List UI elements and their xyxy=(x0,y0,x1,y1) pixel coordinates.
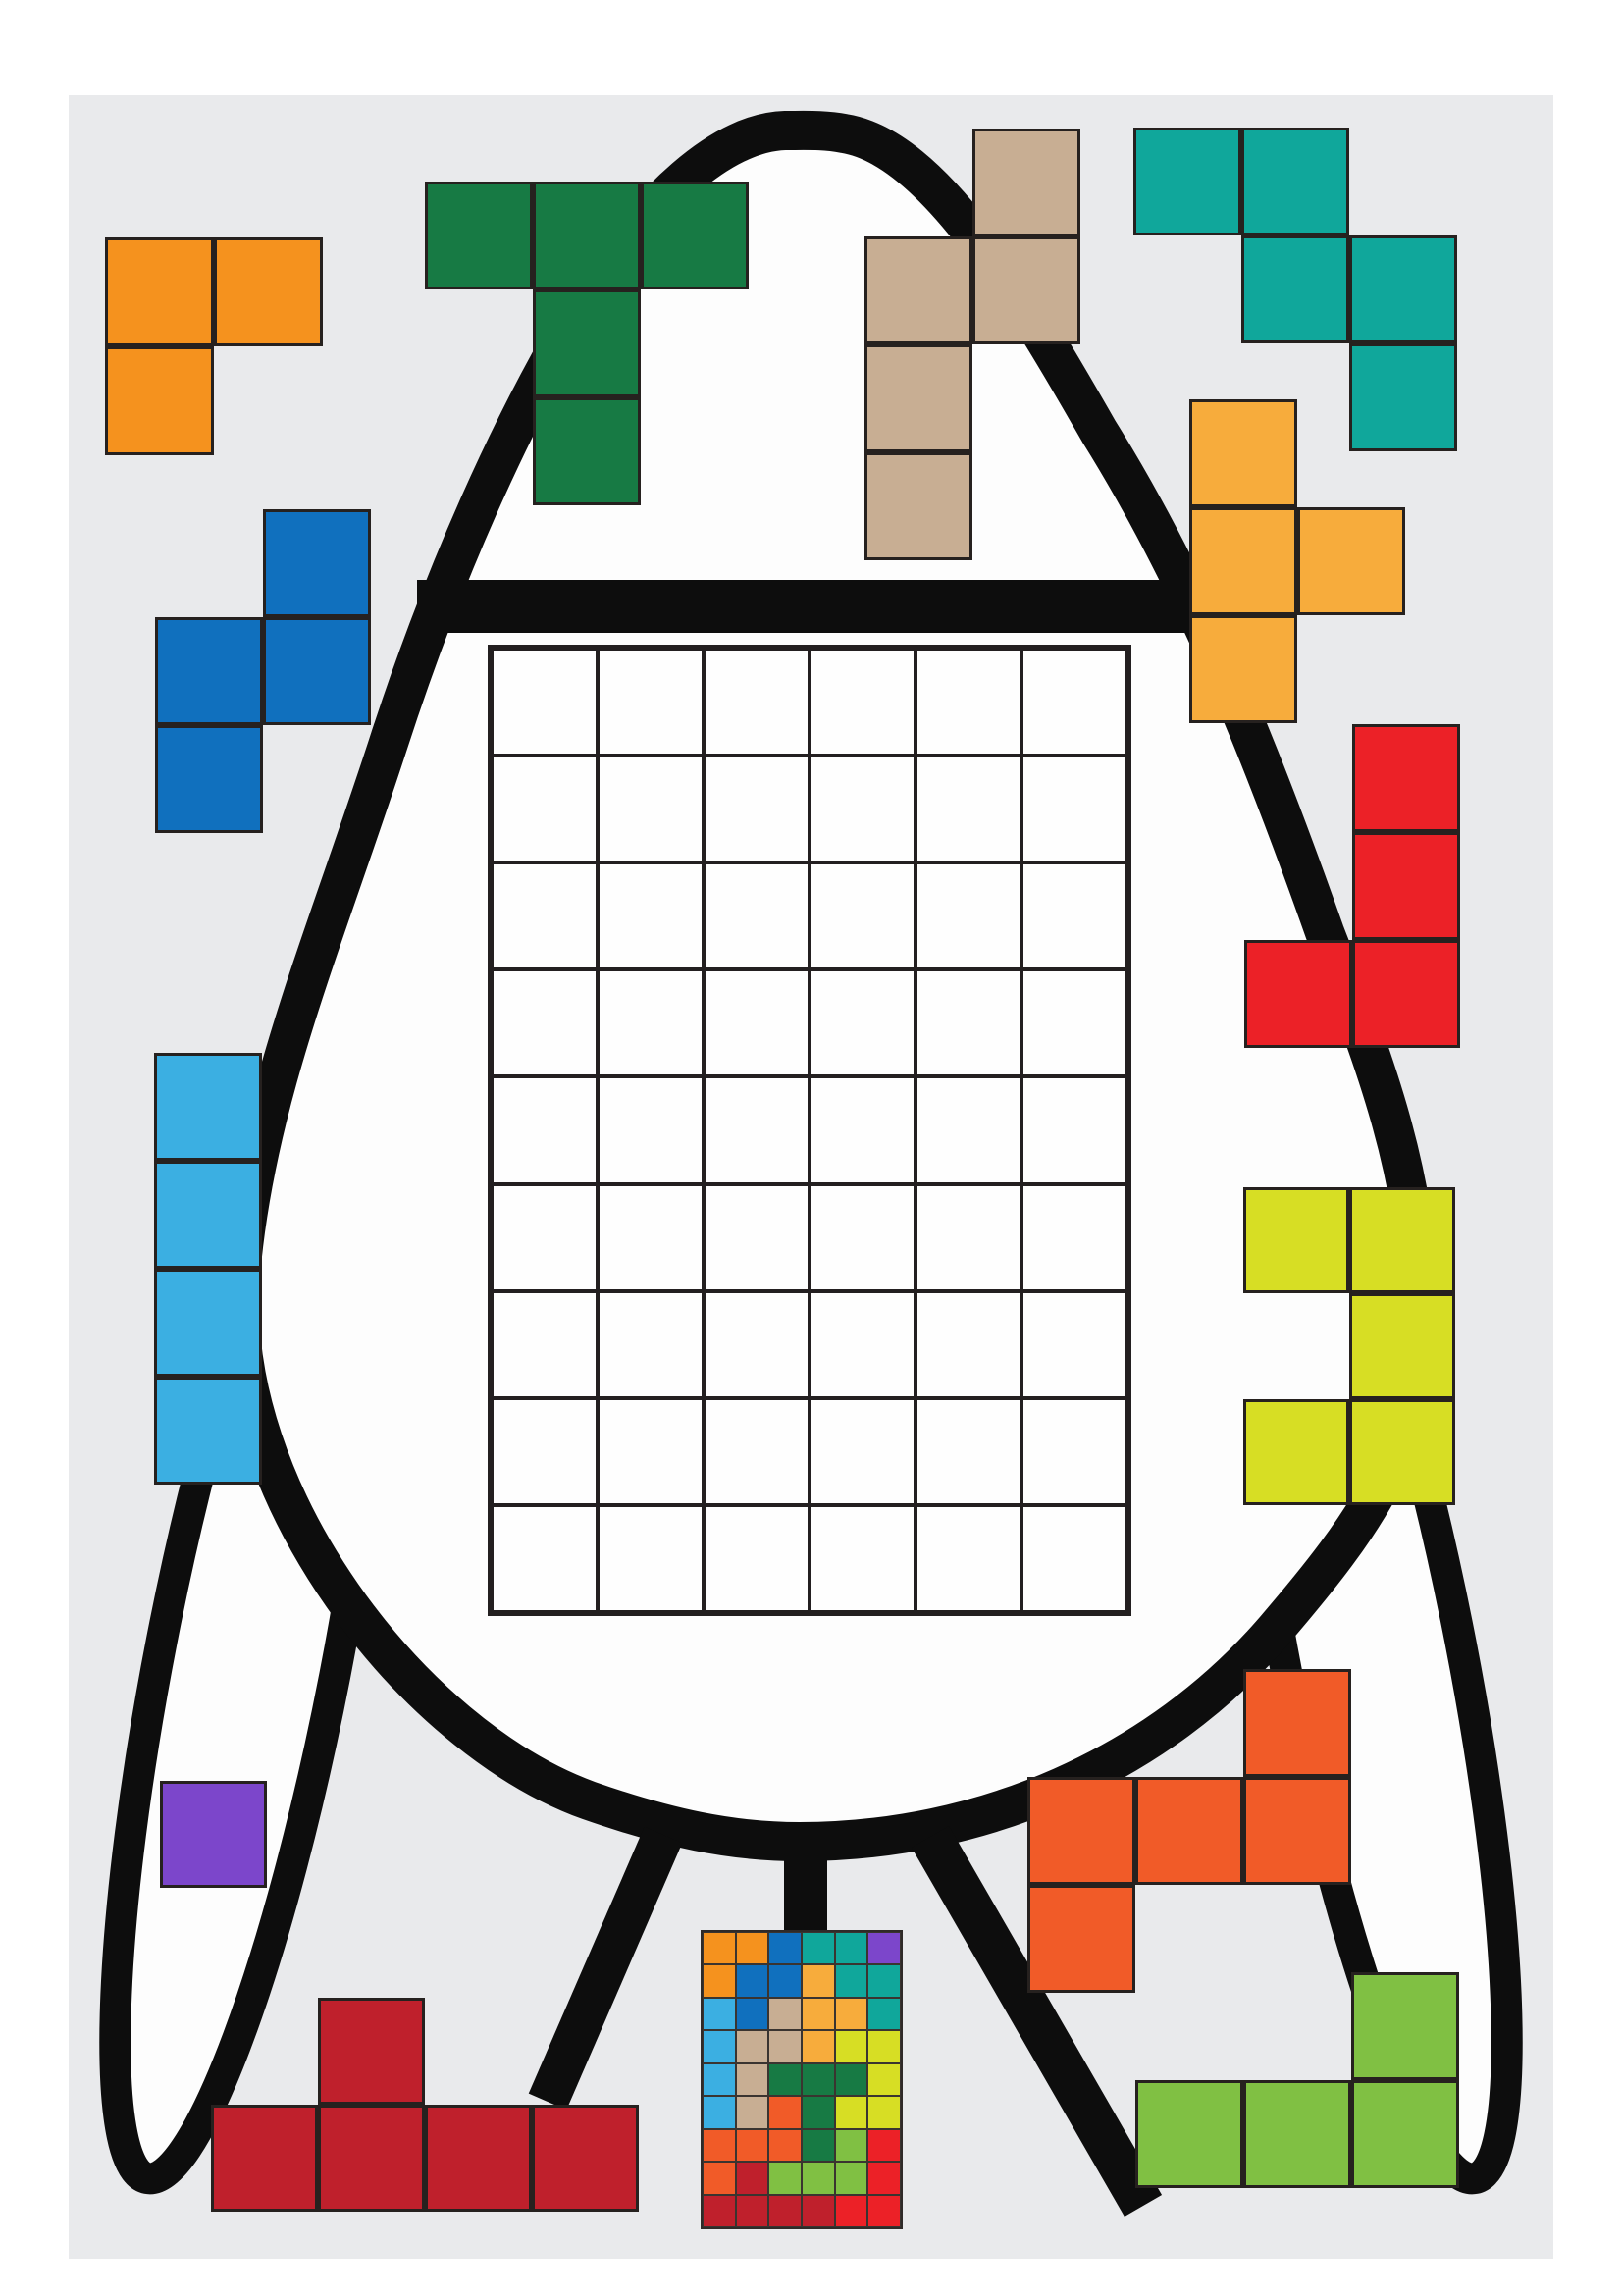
solution-cell xyxy=(703,2129,736,2162)
grid-cell[interactable] xyxy=(916,756,1021,862)
solution-cell xyxy=(867,1998,901,2030)
solution-cell xyxy=(867,2030,901,2062)
solution-cell xyxy=(736,2162,769,2194)
solution-cell xyxy=(802,1964,835,1997)
solution-cell xyxy=(768,2096,802,2128)
piece-square xyxy=(1244,940,1352,1048)
piece-square xyxy=(1189,399,1297,507)
piece-square xyxy=(864,236,972,344)
piece-square xyxy=(318,2105,425,2212)
grid-cell[interactable] xyxy=(492,649,598,756)
solution-cell xyxy=(768,2063,802,2096)
piece-square xyxy=(105,346,214,455)
solution-cell xyxy=(703,1964,736,1997)
grid-cell[interactable] xyxy=(1021,1291,1127,1398)
piece-square xyxy=(1351,1972,1459,2080)
grid-cell[interactable] xyxy=(598,756,704,862)
piece-square xyxy=(1027,1885,1135,1993)
piece-square xyxy=(1297,507,1405,615)
solution-cell xyxy=(768,1932,802,1964)
piece-square xyxy=(1241,235,1349,343)
solution-cell xyxy=(867,2063,901,2096)
grid-cell[interactable] xyxy=(1021,1505,1127,1612)
solution-cell xyxy=(768,1998,802,2030)
solution-cell xyxy=(802,1932,835,1964)
piece-square xyxy=(1189,615,1297,723)
piece-square xyxy=(1349,1293,1455,1399)
solution-cell xyxy=(835,1932,868,1964)
piece-square xyxy=(263,509,371,617)
grid-cell[interactable] xyxy=(598,1076,704,1183)
grid-cell[interactable] xyxy=(492,1291,598,1398)
grid-cell[interactable] xyxy=(704,1184,810,1291)
grid-cell[interactable] xyxy=(598,649,704,756)
piece-square xyxy=(1243,1399,1349,1505)
piece-square xyxy=(1352,724,1460,832)
solution-preview xyxy=(701,1930,903,2229)
solution-cell xyxy=(802,2195,835,2227)
grid-cell[interactable] xyxy=(916,862,1021,969)
piece-square xyxy=(155,617,263,725)
grid-cell[interactable] xyxy=(598,862,704,969)
piece-square xyxy=(533,182,641,289)
grid-cell[interactable] xyxy=(810,1291,916,1398)
grid-cell[interactable] xyxy=(810,1076,916,1183)
grid-cell[interactable] xyxy=(492,1505,598,1612)
piece-square xyxy=(532,2105,639,2212)
piece-amber-t-tetromino[interactable] xyxy=(1189,399,1405,723)
solution-cell xyxy=(867,1964,901,1997)
grid-cell[interactable] xyxy=(810,969,916,1076)
solution-cell xyxy=(867,2129,901,2162)
grid-cell[interactable] xyxy=(1021,862,1127,969)
grid-cell[interactable] xyxy=(916,1291,1021,1398)
solution-cell xyxy=(835,1964,868,1997)
piece-square xyxy=(1351,2080,1459,2188)
grid-cell[interactable] xyxy=(598,1398,704,1505)
grid-cell[interactable] xyxy=(598,1184,704,1291)
piece-applegreen-j-tetromino[interactable] xyxy=(1135,1972,1459,2188)
solution-cell xyxy=(736,2096,769,2128)
solution-cell xyxy=(768,2129,802,2162)
piece-square xyxy=(160,1781,267,1888)
grid-cell[interactable] xyxy=(810,756,916,862)
piece-square xyxy=(972,129,1080,236)
grid-cell[interactable] xyxy=(1021,1398,1127,1505)
piece-square xyxy=(972,236,1080,344)
grid-cell[interactable] xyxy=(1021,1076,1127,1183)
solution-cell xyxy=(802,2129,835,2162)
solution-cell xyxy=(736,2195,769,2227)
piece-chartreuse-u-pentomino[interactable] xyxy=(1243,1187,1455,1505)
solution-cell xyxy=(736,1964,769,1997)
solution-cell xyxy=(768,2195,802,2227)
solution-cell xyxy=(736,1998,769,2030)
solution-cell xyxy=(768,2162,802,2194)
grid-cell[interactable] xyxy=(704,969,810,1076)
piece-square xyxy=(1243,1777,1351,1885)
solution-cell xyxy=(768,1964,802,1997)
piece-square xyxy=(1243,1669,1351,1777)
solution-cell xyxy=(867,2162,901,2194)
piece-green-t-pentomino[interactable] xyxy=(425,182,749,505)
grid-cell[interactable] xyxy=(598,1291,704,1398)
solution-cell xyxy=(835,2162,868,2194)
grid-cell[interactable] xyxy=(492,1076,598,1183)
grid-cell[interactable] xyxy=(704,1398,810,1505)
piece-darkred-y-pentomino[interactable] xyxy=(211,1998,639,2212)
piece-square xyxy=(1241,128,1349,235)
piece-square xyxy=(1027,1777,1135,1885)
grid-cell[interactable] xyxy=(704,649,810,756)
rocket-nozzle xyxy=(784,1848,827,1932)
piece-square xyxy=(154,1161,262,1269)
piece-square xyxy=(1352,832,1460,940)
piece-square xyxy=(425,182,533,289)
grid-cell[interactable] xyxy=(704,862,810,969)
grid-cell[interactable] xyxy=(810,1184,916,1291)
grid-cell[interactable] xyxy=(916,1398,1021,1505)
grid-cell[interactable] xyxy=(1021,969,1127,1076)
grid-cell[interactable] xyxy=(810,862,916,969)
piece-square xyxy=(641,182,749,289)
grid-cell[interactable] xyxy=(492,1398,598,1505)
grid-cell[interactable] xyxy=(810,1398,916,1505)
piece-square xyxy=(1133,128,1241,235)
piece-square xyxy=(864,452,972,560)
piece-orange-l-tromino[interactable] xyxy=(105,237,323,455)
solution-cell xyxy=(802,1998,835,2030)
piece-red-j-tetromino[interactable] xyxy=(1244,724,1460,1048)
piece-square xyxy=(533,397,641,505)
solution-cell xyxy=(703,2030,736,2062)
grid-cell[interactable] xyxy=(492,1184,598,1291)
piece-square xyxy=(105,237,214,346)
piece-square xyxy=(1349,1399,1455,1505)
grid-cell[interactable] xyxy=(704,1291,810,1398)
piece-orangered-n-pentomino[interactable] xyxy=(1027,1669,1351,1993)
piece-square xyxy=(154,1053,262,1161)
grid-cell[interactable] xyxy=(704,1076,810,1183)
puzzle-board xyxy=(488,645,1131,1616)
solution-cell xyxy=(835,2030,868,2062)
piece-square xyxy=(864,344,972,452)
piece-square xyxy=(154,1269,262,1377)
piece-square xyxy=(211,2105,318,2212)
piece-square xyxy=(155,725,263,833)
grid-cell[interactable] xyxy=(916,1184,1021,1291)
piece-skyblue-i-tetromino[interactable] xyxy=(154,1053,262,1485)
solution-cell xyxy=(703,2096,736,2128)
solution-cell xyxy=(802,2096,835,2128)
solution-cell xyxy=(703,2195,736,2227)
solution-cell xyxy=(703,1998,736,2030)
grid-cell[interactable] xyxy=(1021,649,1127,756)
piece-square xyxy=(1189,507,1297,615)
piece-square xyxy=(263,617,371,725)
solution-cell xyxy=(835,2195,868,2227)
piece-square xyxy=(1135,2080,1243,2188)
grid-cell[interactable] xyxy=(916,969,1021,1076)
piece-purple-monomino[interactable] xyxy=(160,1781,267,1888)
solution-cell xyxy=(835,2096,868,2128)
grid-cell[interactable] xyxy=(916,1505,1021,1612)
puzzle-sheet xyxy=(0,0,1622,2296)
solution-cell xyxy=(835,1998,868,2030)
solution-cell xyxy=(802,2162,835,2194)
solution-cell xyxy=(736,2030,769,2062)
piece-square xyxy=(154,1377,262,1485)
solution-cell xyxy=(736,1932,769,1964)
piece-square xyxy=(1135,1777,1243,1885)
grid-cell[interactable] xyxy=(916,649,1021,756)
solution-cell xyxy=(867,2096,901,2128)
solution-cell xyxy=(703,1932,736,1964)
solution-cell xyxy=(802,2063,835,2096)
grid-cell[interactable] xyxy=(598,969,704,1076)
solution-cell xyxy=(736,2129,769,2162)
grid-cell[interactable] xyxy=(492,862,598,969)
grid-cell[interactable] xyxy=(492,756,598,862)
grid-cell[interactable] xyxy=(1021,1184,1127,1291)
piece-square xyxy=(1243,1187,1349,1293)
piece-square xyxy=(533,289,641,397)
piece-square xyxy=(318,1998,425,2105)
solution-cell xyxy=(768,2030,802,2062)
solution-cell xyxy=(867,1932,901,1964)
piece-square xyxy=(425,2105,532,2212)
solution-cell xyxy=(703,2063,736,2096)
solution-cell xyxy=(835,2063,868,2096)
grid-cell[interactable] xyxy=(704,1505,810,1612)
grid-cell[interactable] xyxy=(598,1505,704,1612)
piece-square xyxy=(1243,2080,1351,2188)
solution-cell xyxy=(736,2063,769,2096)
solution-cell xyxy=(835,2129,868,2162)
grid-cell[interactable] xyxy=(492,969,598,1076)
piece-square xyxy=(1349,1187,1455,1293)
grid-cell[interactable] xyxy=(704,756,810,862)
piece-square xyxy=(1352,940,1460,1048)
solution-cell xyxy=(703,2162,736,2194)
solution-cell xyxy=(867,2195,901,2227)
piece-blue-s-tetromino[interactable] xyxy=(155,509,371,833)
grid-cell[interactable] xyxy=(810,649,916,756)
grid-cell[interactable] xyxy=(810,1505,916,1612)
grid-cell[interactable] xyxy=(916,1076,1021,1183)
grid-cell[interactable] xyxy=(1021,756,1127,862)
solution-cell xyxy=(802,2030,835,2062)
piece-tan-n-pentomino[interactable] xyxy=(864,129,1080,560)
piece-square xyxy=(1349,235,1457,343)
piece-square xyxy=(214,237,323,346)
